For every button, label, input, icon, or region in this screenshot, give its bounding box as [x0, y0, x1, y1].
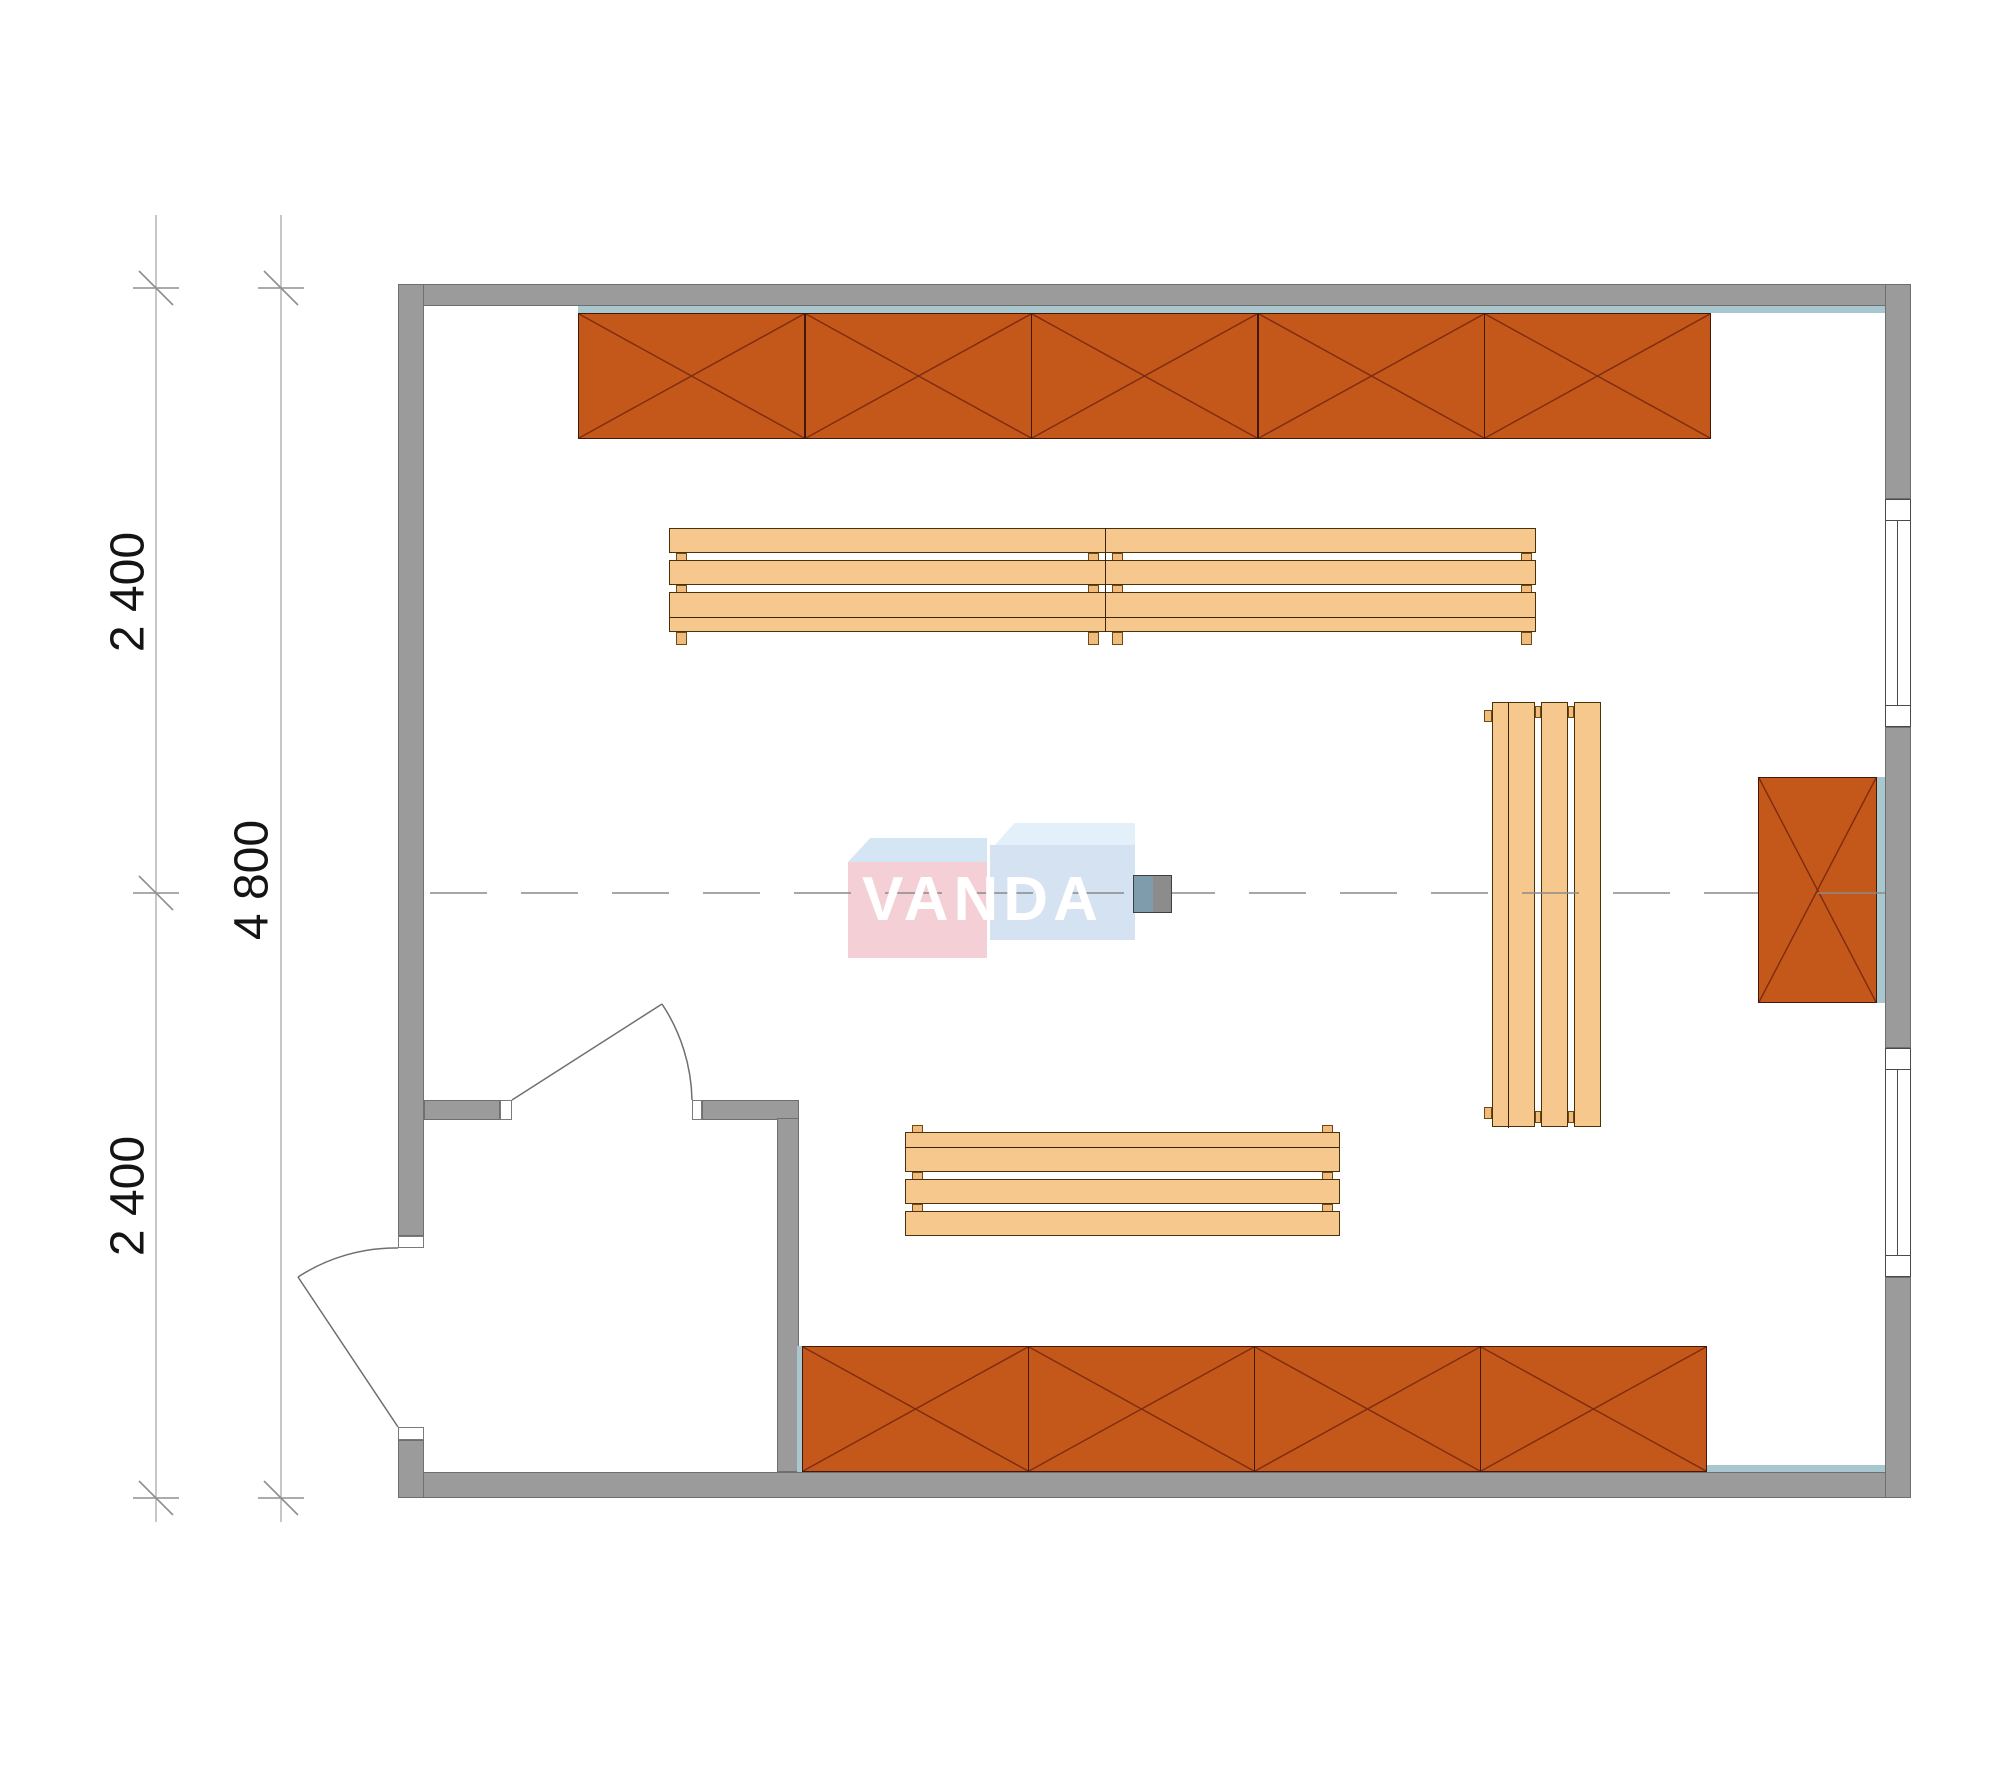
shelf-unit-right-wall — [1758, 777, 1877, 1003]
wall-finish-strip-right — [1877, 777, 1885, 1003]
bench-bottom — [905, 1125, 1340, 1236]
bench-foot — [1088, 632, 1099, 645]
shelf-unit — [578, 313, 805, 439]
window-glazing-line — [1897, 1069, 1898, 1256]
exterior-door-swing-arc — [298, 1248, 398, 1277]
shelf-unit — [1258, 313, 1485, 439]
wall-right-middle — [1885, 727, 1911, 1048]
wall-left-lower — [398, 1440, 424, 1498]
bench-foot — [676, 632, 687, 645]
window-sill-line — [1886, 705, 1910, 706]
bench-board-pair — [1492, 702, 1535, 1127]
interior-door-leaf — [512, 1004, 662, 1100]
dimension-label-4800-total: 4 800 — [225, 820, 280, 940]
window-sill-line — [1886, 1255, 1910, 1256]
bench-foot — [1484, 710, 1492, 722]
shelf-unit — [1028, 1346, 1255, 1472]
exterior-door-leaf — [298, 1277, 398, 1427]
wall-bottom — [398, 1472, 1911, 1498]
interior-door-swing-arc — [662, 1004, 692, 1100]
shelf-unit — [1031, 313, 1258, 439]
bench-board — [1541, 702, 1568, 1127]
bench-board — [905, 1211, 1340, 1236]
heater-block — [1133, 875, 1172, 913]
wall-left-upper — [398, 284, 424, 1236]
shelf-unit — [1254, 1346, 1481, 1472]
bench-board — [905, 1179, 1340, 1204]
dimension-label-2400-top: 2 400 — [101, 532, 156, 652]
bench-board — [669, 560, 1536, 585]
bench-board — [669, 528, 1536, 553]
jamb-interior-door-left — [500, 1100, 512, 1120]
window-sill-line — [1886, 1069, 1910, 1070]
heater-block-half — [1134, 876, 1153, 912]
bench-board-joint — [1508, 703, 1509, 1128]
wall-top — [398, 284, 1911, 306]
window-upper — [1885, 499, 1911, 727]
wall-right-upper — [1885, 284, 1911, 499]
bench-board-joint — [906, 1147, 1339, 1148]
bench-board-joint — [670, 617, 1535, 618]
watermark-block-blue-bevel — [995, 823, 1135, 845]
window-sill-line — [1886, 520, 1910, 521]
bench-foot — [1484, 1107, 1492, 1119]
shelf-unit — [802, 1346, 1029, 1472]
bench-foot — [1112, 632, 1123, 645]
wall-right-lower — [1885, 1277, 1911, 1498]
dimension-label-2400-bottom: 2 400 — [101, 1136, 156, 1256]
watermark-text: VANDA — [862, 864, 1103, 935]
bench-board-pair — [905, 1132, 1340, 1172]
bench-board — [1574, 702, 1601, 1127]
shelf-unit — [1480, 1346, 1707, 1472]
bench-right-vertical — [1484, 702, 1601, 1127]
bench-board-pair — [669, 592, 1536, 632]
floor-plan: 2 400 2 400 4 800 — [0, 0, 2000, 1786]
wall-partition-left — [424, 1100, 500, 1120]
jamb-exterior-door-top — [398, 1236, 424, 1248]
bench-foot — [1521, 632, 1532, 645]
shelf-unit — [805, 313, 1032, 439]
wall-partition-vertical — [777, 1118, 799, 1472]
bench-split-line — [1105, 528, 1106, 632]
shelf-unit — [1484, 313, 1711, 439]
bench-top-double — [669, 528, 1536, 645]
wall-finish-strip-top — [578, 306, 1885, 313]
jamb-exterior-door-bottom — [398, 1427, 424, 1440]
watermark-block-pink-bevel — [848, 838, 987, 862]
window-glazing-line — [1897, 520, 1898, 706]
window-lower — [1885, 1048, 1911, 1277]
jamb-interior-door-right — [692, 1100, 702, 1120]
wall-partition-right — [702, 1100, 799, 1120]
